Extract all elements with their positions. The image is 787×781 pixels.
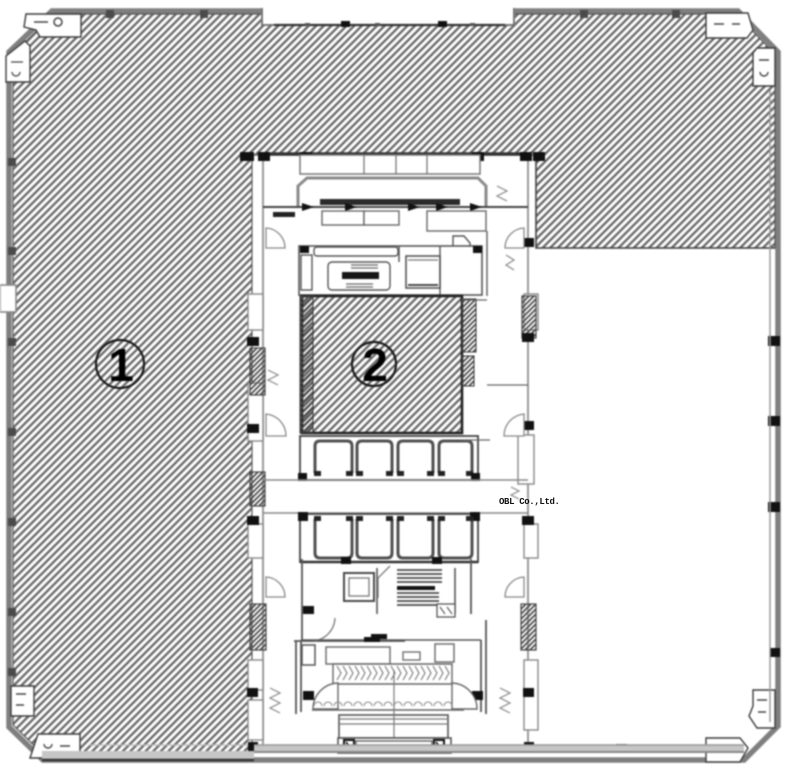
svg-text:2: 2 <box>362 339 388 391</box>
svg-text:1: 1 <box>108 339 134 391</box>
